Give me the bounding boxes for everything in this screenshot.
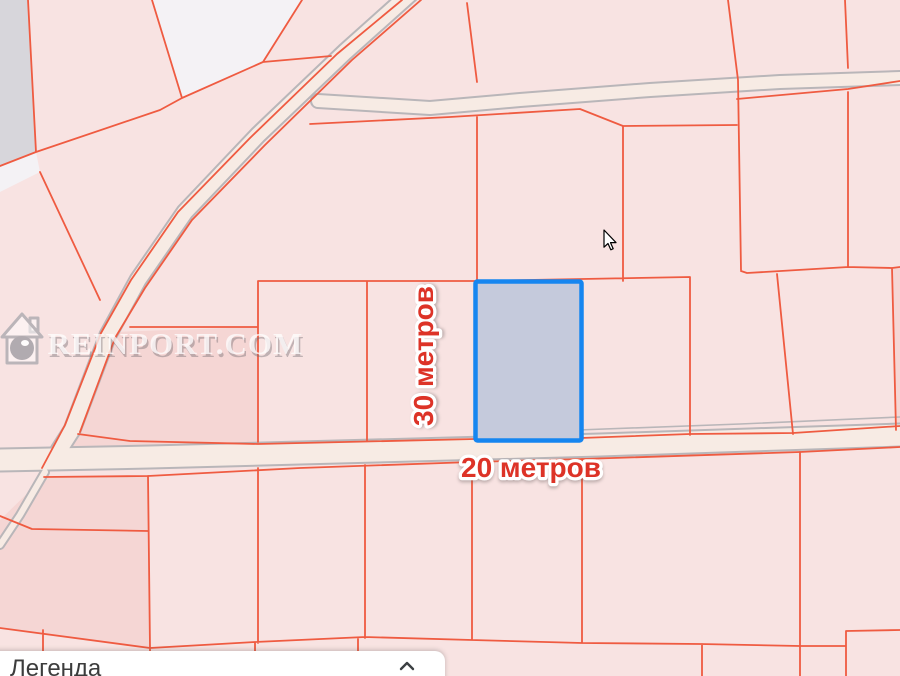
legend-collapse-button[interactable] [397,658,417,674]
parcel-height-label: 30 метров [408,286,439,426]
chevron-up-icon [399,661,415,671]
legend-panel[interactable]: Легенда [0,651,445,676]
map-viewer-window: REINPORT.COM REINPORT.COM 30 метров 20 м… [0,0,900,676]
cadastral-map[interactable]: REINPORT.COM REINPORT.COM 30 метров 20 м… [0,0,900,676]
legend-title: Легенда [10,655,101,676]
selected-parcel[interactable] [476,282,582,441]
watermark-text: REINPORT.COM [48,326,304,361]
parcel-width-label: 20 метров [461,452,601,483]
